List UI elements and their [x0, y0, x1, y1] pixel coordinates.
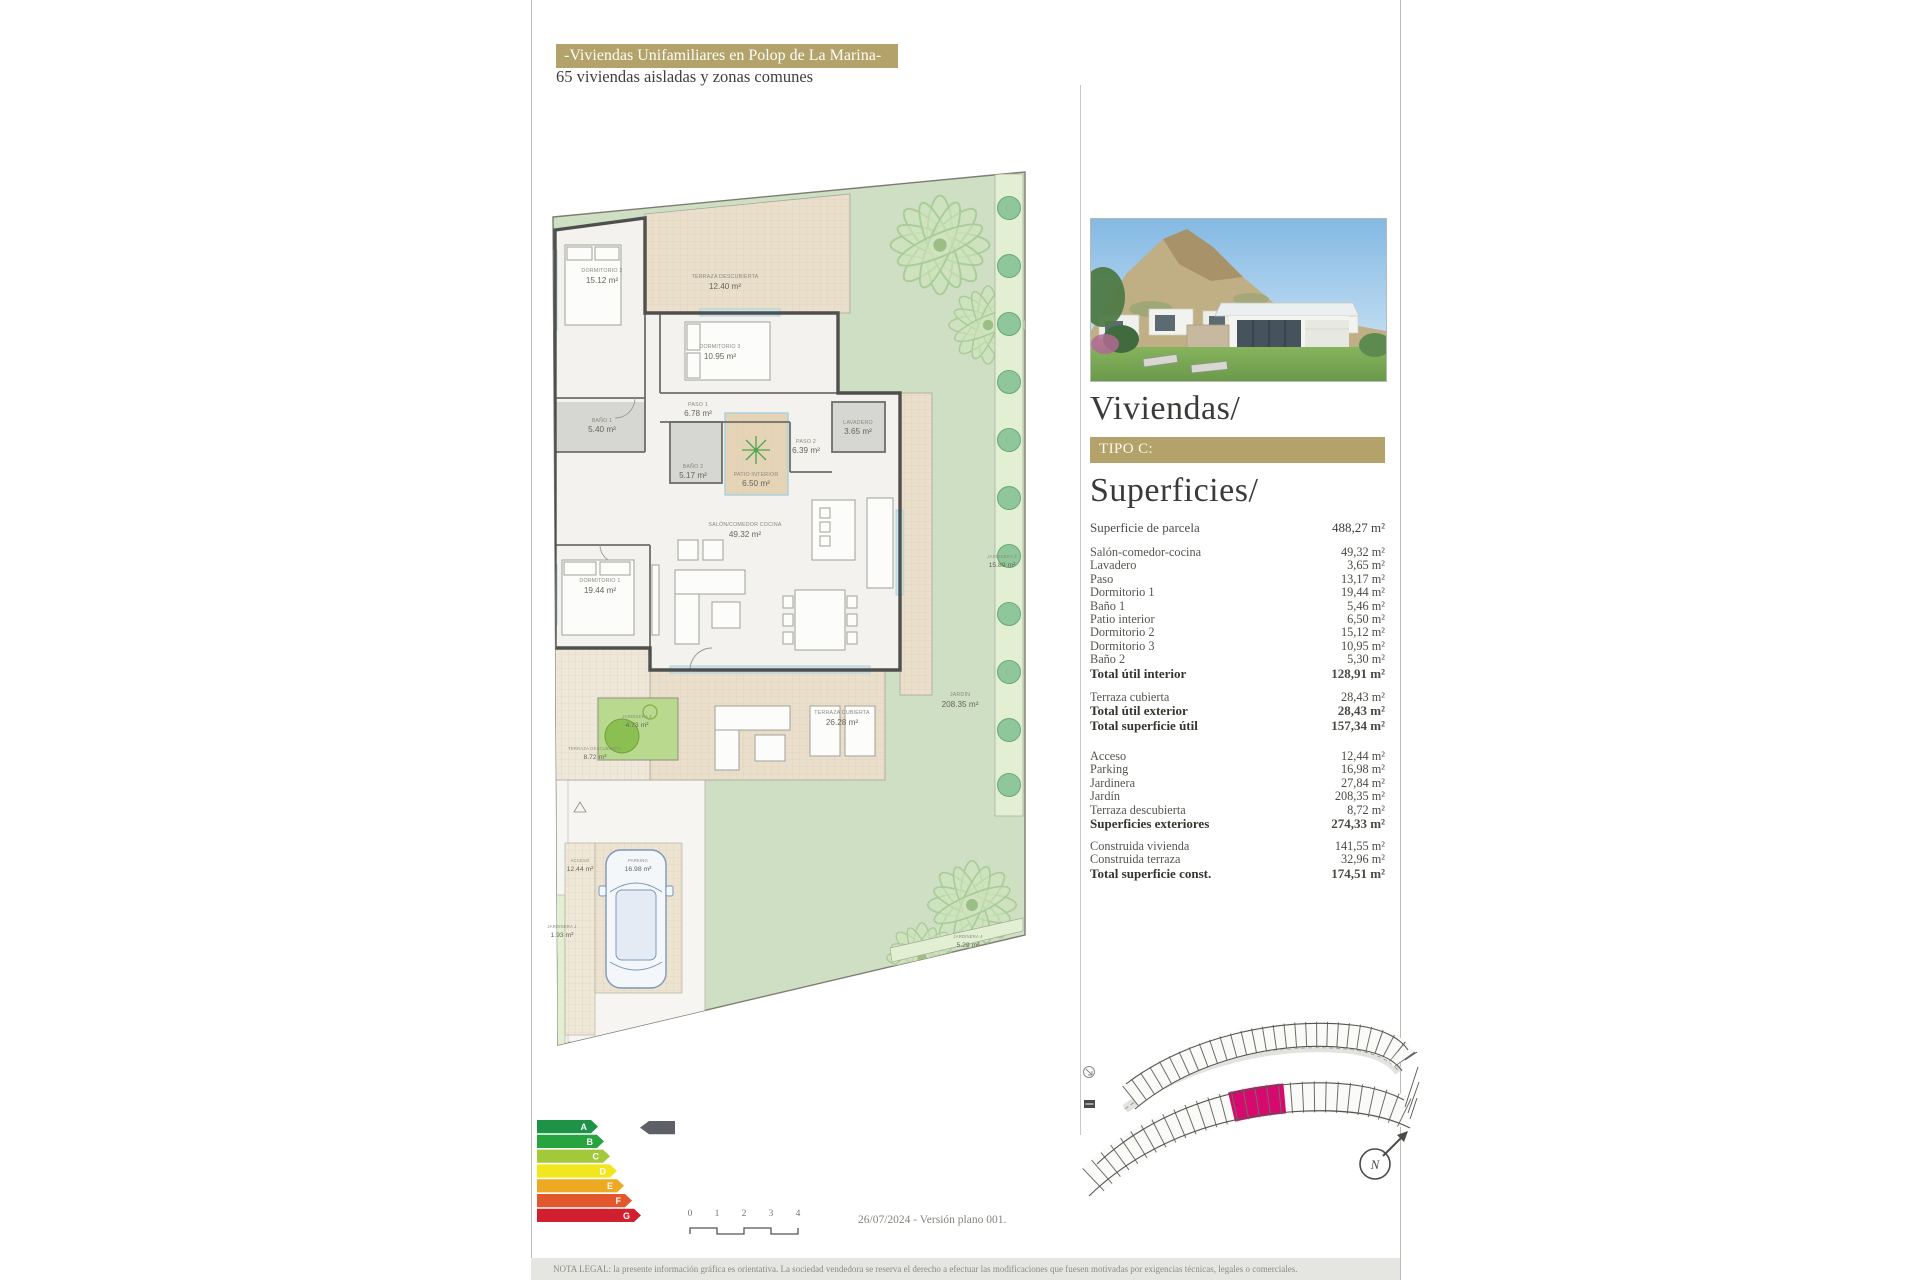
page-subtitle: 65 viviendas aisladas y zonas comunes	[556, 67, 813, 87]
room-label: TERRAZA CUBIERTA	[814, 710, 870, 716]
table-row: Construida terraza32,96 m²	[1090, 853, 1385, 866]
north-compass-icon: N	[1360, 1131, 1408, 1179]
room-label: BAÑO 2	[683, 463, 704, 470]
parcel-surface-row: Superficie de parcela 488,27 m²	[1090, 520, 1385, 536]
svg-text:2: 2	[742, 1209, 747, 1219]
parcel-surface-value: 488,27 m²	[1332, 520, 1385, 536]
date-version: 26/07/2024 - Versión plano 001.	[858, 1214, 1006, 1226]
page-left-border	[531, 0, 532, 1280]
table-row: Acceso12,44 m²	[1090, 750, 1385, 763]
jardinera-strip-left	[554, 895, 565, 1045]
svg-text:4: 4	[796, 1209, 801, 1219]
svg-text:49.32 m²: 49.32 m²	[729, 530, 762, 539]
room-label: JARDINERA 3	[622, 714, 652, 719]
svg-text:0: 0	[688, 1209, 693, 1219]
room-label: ACCESO	[571, 858, 590, 863]
table-row: Superficies exteriores274,33 m²	[1090, 817, 1385, 832]
floor-plan: DORMITORIO 215.12 m² TERRAZA DESCUBIERTA…	[540, 150, 1080, 1060]
built-surfaces-table: Construida vivienda141,55 m²Construida t…	[1090, 840, 1385, 881]
panel-divider	[1080, 85, 1081, 1135]
svg-text:10.95 m²: 10.95 m²	[704, 352, 737, 361]
svg-text:3: 3	[769, 1209, 774, 1219]
svg-text:A: A	[581, 1122, 588, 1132]
svg-text:12.44 m²: 12.44 m²	[567, 866, 595, 873]
site-plan: N	[1075, 1012, 1420, 1202]
table-row: Construida vivienda141,55 m²	[1090, 840, 1385, 853]
svg-text:15.12 m²: 15.12 m²	[586, 276, 619, 285]
room-label: JARDINERA 1	[547, 924, 577, 929]
room-label: DORMITORIO 1	[579, 578, 620, 584]
table-row: Patio interior6,50 m²	[1090, 613, 1385, 626]
svg-text:E: E	[607, 1181, 613, 1191]
interior-surfaces-table: Salón-comedor-cocina49,32 m²Lavadero3,65…	[1090, 546, 1385, 681]
table-row: Lavadero3,65 m²	[1090, 559, 1385, 572]
table-row: Baño 25,30 m²	[1090, 653, 1385, 666]
table-row: Total superficie const.174,51 m²	[1090, 867, 1385, 882]
energy-bar-b	[537, 1135, 604, 1148]
svg-text:D: D	[600, 1166, 607, 1176]
svg-text:5.29 m²: 5.29 m²	[956, 942, 980, 949]
room-label: JARDÍN	[950, 691, 970, 698]
room-label: PASO 2	[796, 439, 816, 445]
type-badge: TIPO C:	[1090, 437, 1385, 463]
lawn	[1091, 347, 1386, 381]
parcel-surface-label: Superficie de parcela	[1090, 520, 1200, 536]
svg-text:6.39 m²: 6.39 m²	[792, 446, 820, 455]
svg-text:G: G	[623, 1211, 630, 1221]
room-label: PATIO INTERIOR	[734, 472, 779, 478]
villa-render-photo	[1090, 218, 1387, 382]
table-row: Terraza descubierta8,72 m²	[1090, 804, 1385, 817]
svg-text:208.35 m²: 208.35 m²	[942, 700, 979, 709]
table-row: Dormitorio 215,12 m²	[1090, 626, 1385, 639]
table-row: Paso13,17 m²	[1090, 573, 1385, 586]
current-rating-pointer-icon	[640, 1121, 675, 1134]
table-row: Total útil exterior28,43 m²	[1090, 704, 1385, 719]
svg-text:4.73 m²: 4.73 m²	[625, 722, 649, 729]
room-label: BAÑO 1	[592, 417, 613, 424]
room-label: JARDINERA 2	[987, 554, 1017, 559]
svg-text:B: B	[587, 1137, 594, 1147]
svg-text:1: 1	[715, 1209, 720, 1219]
svg-text:26.28 m²: 26.28 m²	[826, 718, 859, 727]
table-row: Dormitorio 310,95 m²	[1090, 640, 1385, 653]
superficies-title: Superficies/	[1090, 472, 1258, 510]
svg-text:C: C	[593, 1152, 600, 1162]
svg-text:6.78 m²: 6.78 m²	[684, 409, 712, 418]
energy-bar-a	[537, 1120, 598, 1133]
table-row: Terraza cubierta28,43 m²	[1090, 691, 1385, 704]
table-row: Total útil interior128,91 m²	[1090, 667, 1385, 682]
scale-bar: 0 1 2 3 4	[686, 1206, 816, 1240]
room-label: DORMITORIO 2	[581, 268, 622, 274]
exterior-util-table: Terraza cubierta28,43 m²Total útil exter…	[1090, 691, 1385, 733]
svg-text:N: N	[1370, 1157, 1381, 1172]
room-label: PARKING	[628, 858, 648, 863]
room-label: PASO 1	[688, 402, 708, 408]
room-label: TERRAZA DESCUBIERTA	[692, 274, 759, 280]
svg-text:5.17 m²: 5.17 m²	[679, 471, 707, 480]
plan-sheet: -Viviendas Unifamiliares en Polop de La …	[0, 0, 1920, 1280]
svg-text:6.50 m²: 6.50 m²	[742, 479, 770, 488]
table-row: Jardinera27,84 m²	[1090, 777, 1385, 790]
svg-text:3.65 m²: 3.65 m²	[844, 427, 872, 436]
svg-text:15.89 m²: 15.89 m²	[989, 562, 1017, 569]
legal-note: NOTA LEGAL: la presente información gráf…	[531, 1258, 1400, 1280]
table-row: Total superficie útil157,34 m²	[1090, 719, 1385, 734]
patio-palm-icon	[742, 436, 770, 464]
svg-text:8.72 m²: 8.72 m²	[583, 754, 607, 761]
svg-text:F: F	[616, 1196, 622, 1206]
table-row: Dormitorio 119,44 m²	[1090, 586, 1385, 599]
page-title: -Viviendas Unifamiliares en Polop de La …	[556, 44, 898, 68]
table-row: Baño 15,46 m²	[1090, 600, 1385, 613]
orientation-icon	[1084, 1067, 1095, 1078]
table-row: Jardín208,35 m²	[1090, 790, 1385, 803]
svg-text:5.40 m²: 5.40 m²	[588, 425, 616, 434]
svg-text:16.98 m²: 16.98 m²	[625, 866, 653, 873]
viviendas-title: Viviendas/	[1090, 390, 1240, 428]
room-label: SALÓN/COMEDOR COCINA	[708, 521, 781, 528]
room-label: TERRAZA DESCUBIERTA	[568, 746, 622, 751]
energy-bar-c	[537, 1150, 610, 1163]
svg-text:1.93 m²: 1.93 m²	[550, 932, 574, 939]
svg-text:19.44 m²: 19.44 m²	[584, 586, 617, 595]
table-row: Salón-comedor-cocina49,32 m²	[1090, 546, 1385, 559]
room-label: JARDINERA 4	[953, 934, 983, 939]
room-label: DORMITORIO 3	[699, 344, 740, 350]
jardinera-strip-right	[995, 174, 1023, 816]
svg-text:12.40 m²: 12.40 m²	[709, 282, 742, 291]
exterior-surfaces-table: Acceso12,44 m²Parking16,98 m²Jardinera27…	[1090, 750, 1385, 832]
table-row: Parking16,98 m²	[1090, 763, 1385, 776]
room-label: LAVADERO	[843, 420, 873, 426]
